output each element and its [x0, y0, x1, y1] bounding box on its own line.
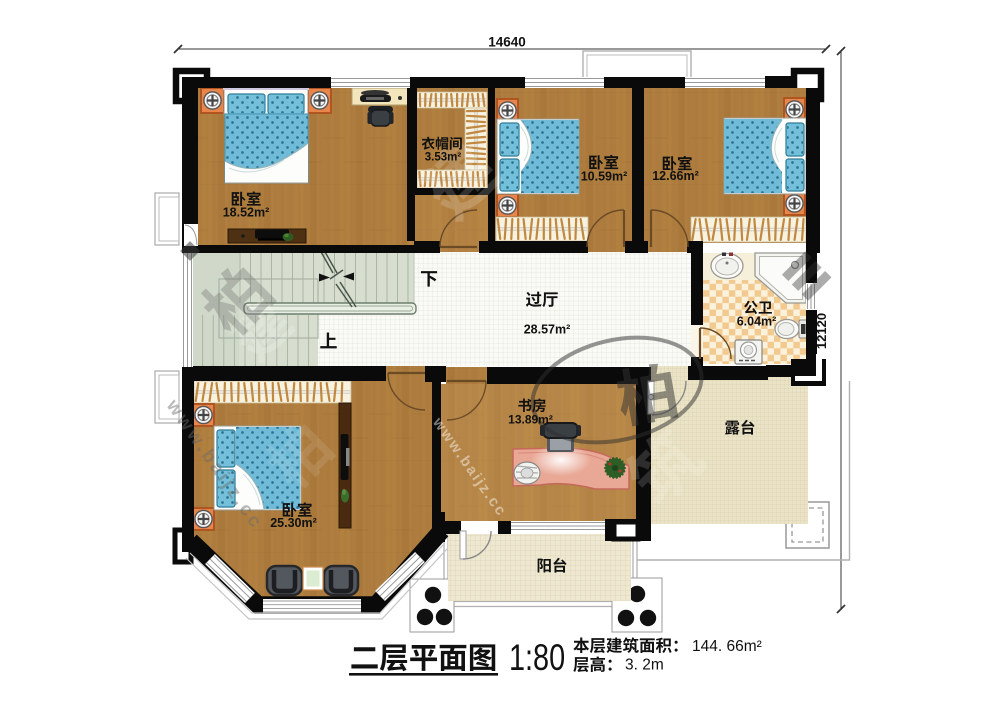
- svg-text:28.57m²: 28.57m²: [524, 323, 571, 337]
- svg-text:6.04m²: 6.04m²: [737, 315, 777, 329]
- svg-text:14640: 14640: [488, 35, 526, 50]
- svg-text:10.59m²: 10.59m²: [581, 170, 628, 184]
- svg-text:18.52m²: 18.52m²: [223, 206, 270, 220]
- svg-text:12.66m²: 12.66m²: [652, 169, 699, 183]
- svg-text:3. 2m: 3. 2m: [625, 657, 664, 674]
- svg-text:3.53m²: 3.53m²: [425, 152, 462, 164]
- svg-text:1:80: 1:80: [509, 638, 565, 679]
- svg-text:144. 66m²: 144. 66m²: [692, 638, 762, 655]
- svg-text:13.89m²: 13.89m²: [508, 413, 553, 427]
- svg-text:25.30m²: 25.30m²: [270, 516, 317, 530]
